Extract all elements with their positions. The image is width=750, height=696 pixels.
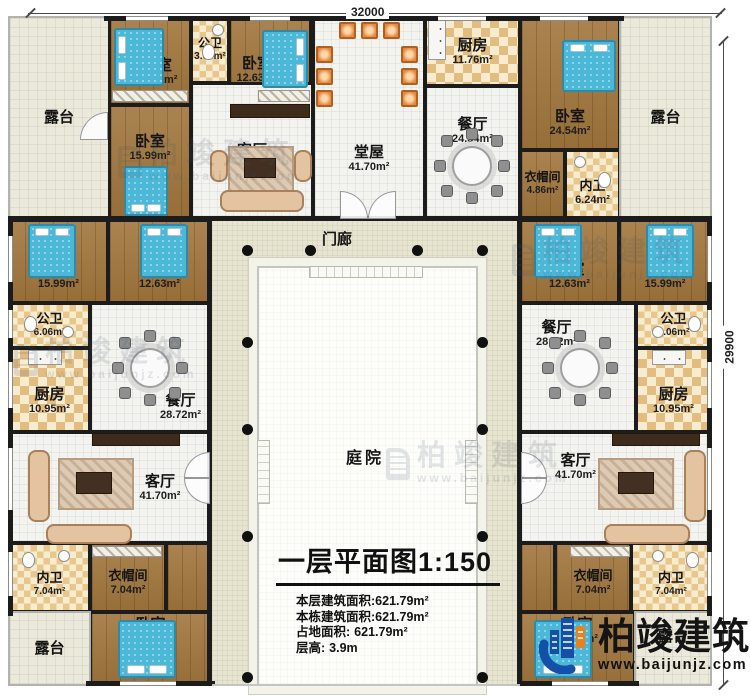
hall-chair xyxy=(361,22,378,39)
dining-table xyxy=(452,146,492,186)
stove xyxy=(28,350,62,365)
sofa xyxy=(684,450,706,522)
courtyard-step xyxy=(309,266,423,278)
dimension-line-top: 32000 xyxy=(28,13,722,14)
sink-icon xyxy=(62,326,74,338)
room-terrace-bottom-left: 露台 xyxy=(8,611,91,686)
sink-icon xyxy=(652,550,664,562)
porch-column xyxy=(242,531,253,542)
courtyard-label: 庭院 xyxy=(346,444,384,468)
bed xyxy=(140,224,188,278)
bed xyxy=(646,224,694,278)
plan-title: 一层平面图1:150 xyxy=(276,540,500,586)
plan-stats: 本层建筑面积:621.79m² 本栋建筑面积:621.79m² 占地面积:621… xyxy=(296,594,500,656)
window xyxy=(120,681,176,686)
floor-plan: 门廊 庭院 露台 卧室12.63m² 公卫3.68m² 卧室12.63m² 卧室… xyxy=(0,0,750,696)
plan-title-block: 一层平面图1:150 本层建筑面积:621.79m² 本栋建筑面积:621.79… xyxy=(276,540,500,656)
bed xyxy=(114,28,164,86)
sink-icon xyxy=(574,156,586,168)
porch-column xyxy=(477,245,488,256)
window xyxy=(707,362,712,408)
stat-row: 占地面积:621.79m² xyxy=(296,625,500,641)
window xyxy=(707,448,712,510)
room-bathroom: 内卫7.04m² xyxy=(630,542,712,613)
brand-logo: 柏竣建筑 www.baijunjz.com xyxy=(538,616,750,674)
window xyxy=(8,310,13,338)
brand-logo-text: 柏竣建筑 www.baijunjz.com xyxy=(598,618,750,673)
armchair xyxy=(294,150,312,182)
toilet-icon xyxy=(688,316,701,332)
bed xyxy=(262,30,308,88)
wardrobe xyxy=(258,90,310,102)
window xyxy=(707,552,712,596)
coffee-table xyxy=(76,472,112,494)
stat-row: 层高:3.9m xyxy=(296,641,500,657)
wardrobe xyxy=(570,546,630,557)
wardrobe xyxy=(92,546,162,557)
bed xyxy=(534,224,582,278)
room-bedroom-entry xyxy=(519,542,556,613)
stove xyxy=(652,350,686,365)
tv-cabinet xyxy=(612,433,700,446)
hall-chair xyxy=(401,90,418,107)
sofa xyxy=(604,524,690,544)
bed xyxy=(118,620,176,678)
stove xyxy=(428,20,446,60)
tv-cabinet xyxy=(230,104,310,118)
dimension-right-value: 29900 xyxy=(723,325,737,368)
toilet-icon xyxy=(24,316,37,332)
porch-column xyxy=(477,424,488,435)
wardrobe xyxy=(112,90,188,102)
room-bathroom: 内卫7.04m² xyxy=(8,542,91,613)
courtyard-bottom-edge xyxy=(212,684,520,686)
porch-label: 门廊 xyxy=(322,228,352,249)
window xyxy=(540,16,588,21)
dimension-top-value: 32000 xyxy=(346,5,389,19)
sofa xyxy=(220,190,304,212)
porch-column xyxy=(242,337,253,348)
toilet-icon xyxy=(22,552,35,568)
bed xyxy=(562,40,616,92)
sink-icon xyxy=(58,550,70,562)
porch-column xyxy=(242,672,253,683)
sofa xyxy=(28,450,50,522)
porch-column xyxy=(242,424,253,435)
hall-chair xyxy=(339,22,356,39)
room-bathroom: 公卫6.06m² xyxy=(8,302,91,349)
wall xyxy=(207,216,212,686)
armchair xyxy=(210,150,228,182)
dining-table xyxy=(130,348,170,388)
dining-table-set xyxy=(112,330,188,406)
bed xyxy=(28,224,76,278)
window xyxy=(8,236,13,282)
room-bedroom-entry xyxy=(165,542,212,613)
hall-chair xyxy=(316,90,333,107)
stat-row: 本栋建筑面积:621.79m² xyxy=(296,610,500,626)
toilet-icon xyxy=(686,552,699,568)
dining-table-set xyxy=(434,128,510,204)
window xyxy=(8,362,13,408)
window xyxy=(707,310,712,338)
porch-column xyxy=(412,245,423,256)
stat-row: 本层建筑面积:621.79m² xyxy=(296,594,500,610)
bed xyxy=(124,166,168,216)
hall-chair xyxy=(316,46,333,63)
wall xyxy=(517,216,522,686)
window xyxy=(250,16,290,21)
dimension-line-right: 29900 xyxy=(723,40,724,686)
sink-icon xyxy=(212,24,224,36)
toilet-icon xyxy=(202,44,215,60)
porch-column xyxy=(242,245,253,256)
window xyxy=(8,552,13,596)
window xyxy=(707,236,712,282)
room-bathroom: 内卫6.24m² xyxy=(564,149,621,219)
room-terrace-top-right: 露台 xyxy=(619,16,712,219)
hall-chair xyxy=(383,22,400,39)
porch-column xyxy=(477,672,488,683)
dining-table xyxy=(560,348,600,388)
porch-column xyxy=(305,245,316,256)
hall-chair xyxy=(316,68,333,85)
hall-chair xyxy=(401,68,418,85)
sink-icon xyxy=(652,326,664,338)
coffee-table xyxy=(618,472,654,494)
window xyxy=(438,16,486,21)
dining-table-set xyxy=(542,330,618,406)
window xyxy=(8,448,13,510)
coffee-table xyxy=(244,158,276,178)
courtyard-step xyxy=(257,440,270,504)
sofa xyxy=(46,524,132,544)
brand-logo-icon xyxy=(538,616,590,674)
toilet-icon xyxy=(598,172,611,188)
window xyxy=(552,681,608,686)
porch-column xyxy=(477,337,488,348)
courtyard-step xyxy=(465,440,478,504)
room-cloakroom: 衣帽间4.86m² xyxy=(519,149,566,219)
tv-cabinet xyxy=(92,433,180,446)
window xyxy=(126,16,168,21)
hall-chair xyxy=(401,46,418,63)
